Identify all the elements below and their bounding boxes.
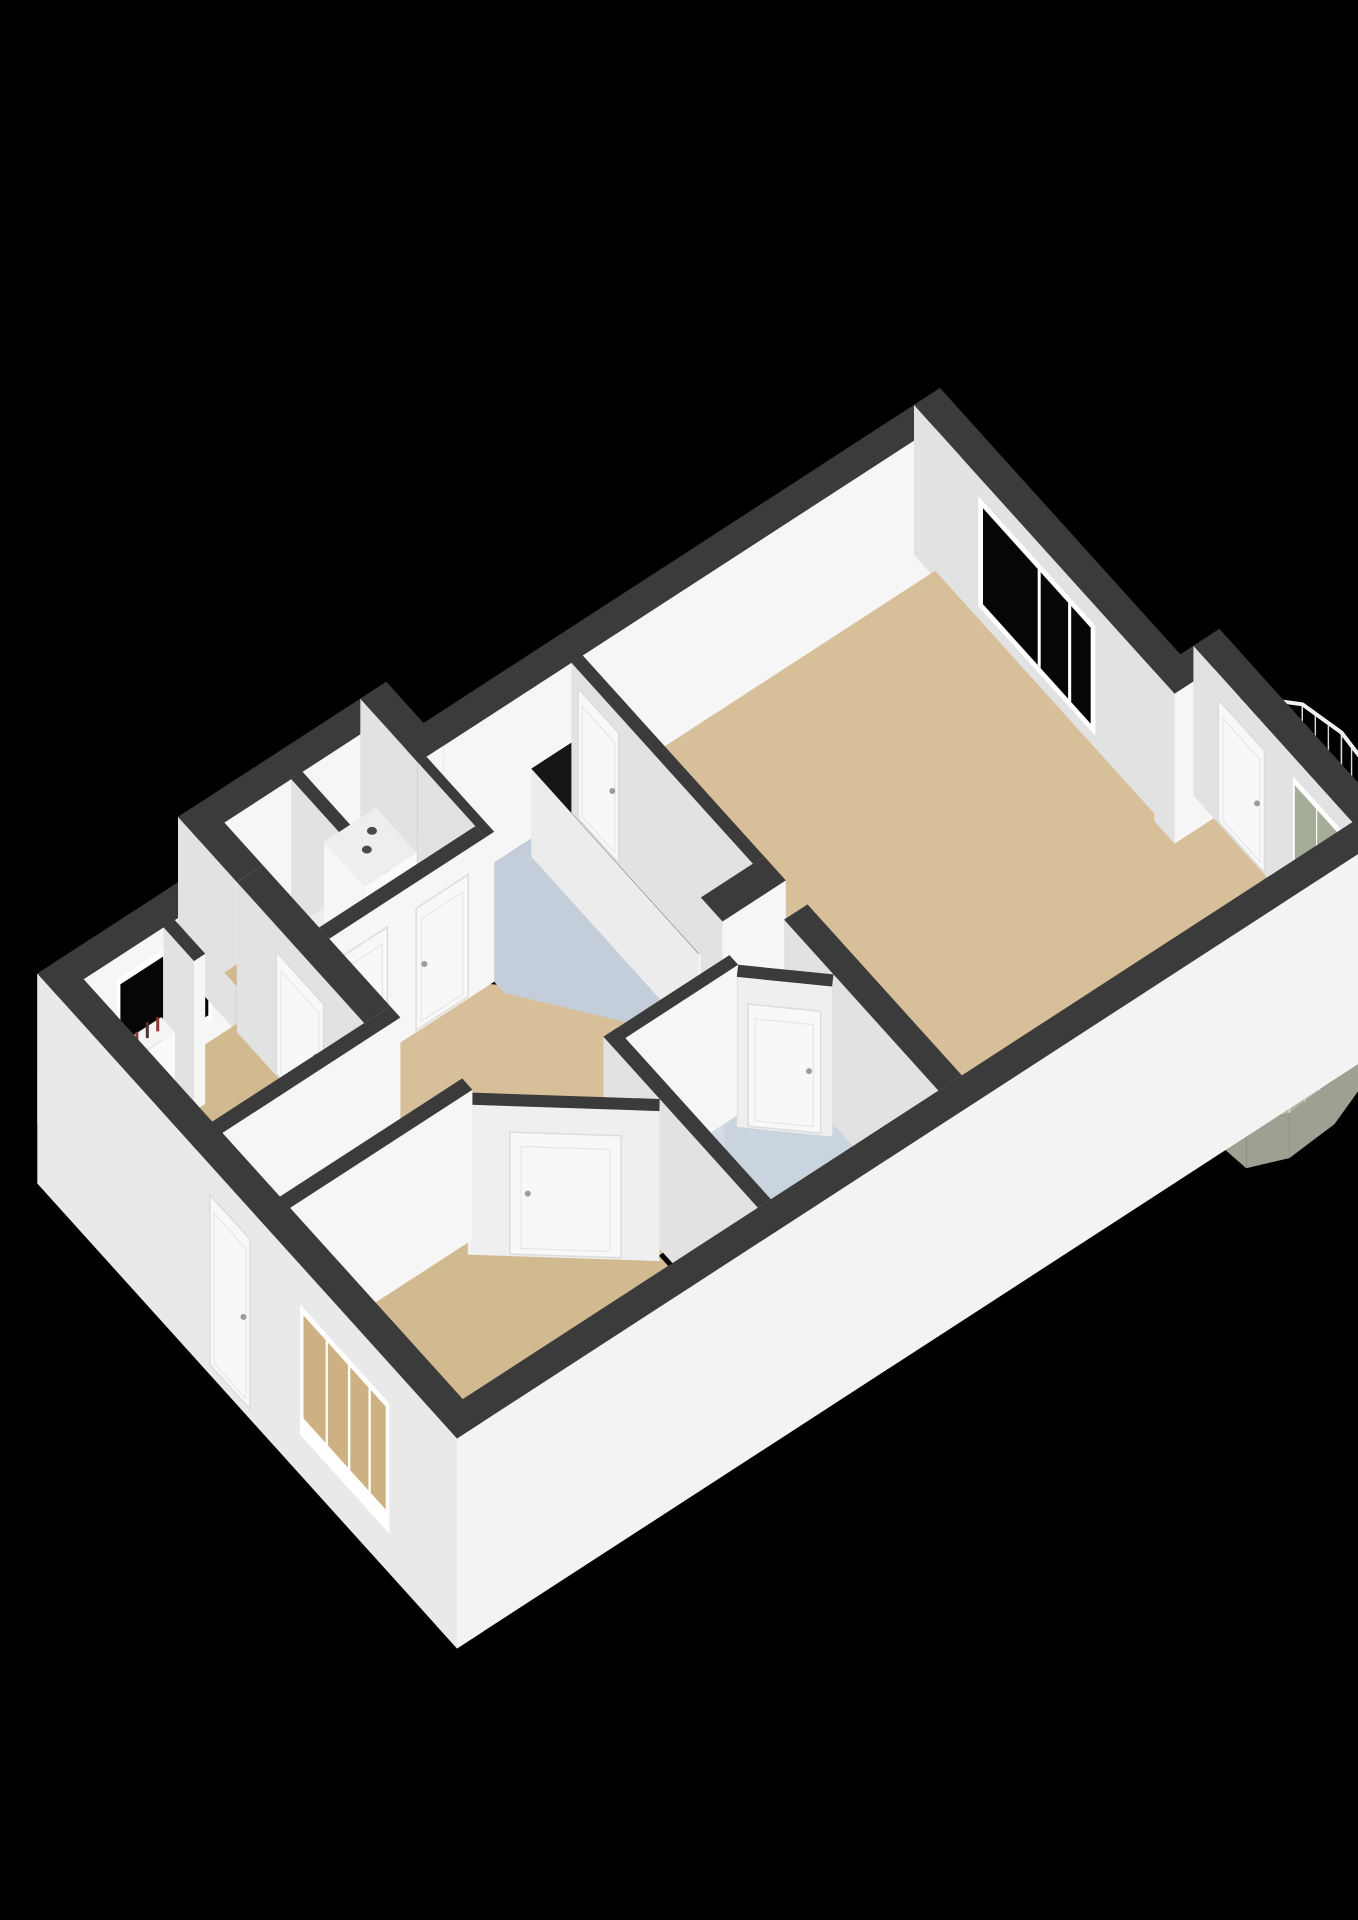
wall-cap <box>832 974 833 1136</box>
bathroom-door <box>748 1004 820 1133</box>
door-handle-icon <box>609 788 615 794</box>
wall-cap <box>737 965 738 1127</box>
boiler-opening-1-icon <box>367 827 377 835</box>
wall-face-se <box>194 954 205 1111</box>
wall-face-se <box>457 1422 483 1649</box>
wall-bathroom-chamfer <box>737 965 834 1137</box>
door-handle-icon <box>1254 800 1260 806</box>
floorplan-3d-viewport <box>0 0 1358 1920</box>
window-mullion-2 <box>369 1388 371 1507</box>
door-handle-icon <box>806 1068 812 1074</box>
door-handle-icon <box>240 1314 246 1320</box>
bedroom-bottom-door <box>510 1132 621 1258</box>
wall-face-sw <box>1154 671 1174 844</box>
wall-face-se <box>486 832 495 988</box>
window-mullion-1 <box>1068 603 1071 702</box>
boiler-opening-2-icon <box>362 846 372 854</box>
window-mullion-0 <box>326 1340 328 1459</box>
window-mullion-1 <box>348 1365 350 1484</box>
floorplan-3d-scene <box>0 0 1358 1920</box>
wall-bedroom-bottom-chamfer <box>468 1093 660 1262</box>
window-mullion-0 <box>1038 569 1041 668</box>
door-handle-icon <box>525 1191 531 1197</box>
door-handle-icon <box>421 961 427 967</box>
